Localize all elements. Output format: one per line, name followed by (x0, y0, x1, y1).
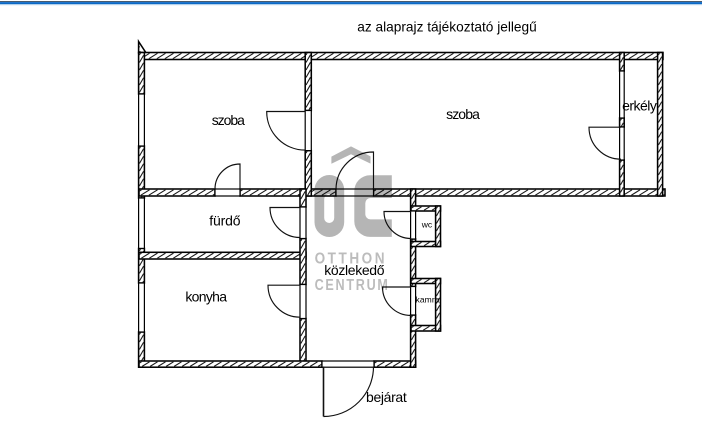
svg-text:erkély: erkély (622, 97, 657, 113)
svg-text:CENTRUM: CENTRUM (315, 277, 390, 294)
svg-text:szoba: szoba (212, 112, 245, 128)
svg-text:fürdő: fürdő (209, 212, 241, 228)
svg-text:wc: wc (421, 219, 433, 229)
svg-text:kamra: kamra (416, 294, 440, 304)
svg-text:az alaprajz tájékoztató jelleg: az alaprajz tájékoztató jellegű (357, 19, 537, 35)
svg-text:konyha: konyha (185, 289, 227, 305)
svg-text:közlekedő: közlekedő (324, 262, 385, 278)
svg-text:szoba: szoba (446, 106, 480, 122)
svg-text:bejárat: bejárat (366, 389, 407, 405)
